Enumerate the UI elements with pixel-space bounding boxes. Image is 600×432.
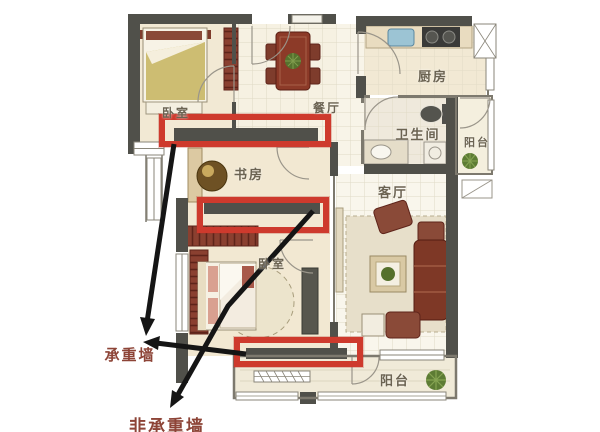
wall-bedroom-dining bbox=[232, 24, 236, 64]
label-living: 客厅 bbox=[378, 182, 408, 201]
stove-burner bbox=[443, 31, 455, 43]
window bbox=[292, 15, 322, 23]
bed-bottom-pillow bbox=[208, 298, 218, 324]
label-balcony-bottom: 阳台 bbox=[380, 370, 410, 389]
sofa bbox=[414, 240, 448, 320]
floor-plan: 卧室 餐厅 厨房 卫生间 阳台 客厅 书房 卧室 阳台 承重墙 非承重墙 bbox=[0, 0, 600, 432]
bed-top-pillows bbox=[146, 31, 202, 40]
plant-leaves bbox=[426, 370, 446, 390]
wall-left bbox=[128, 14, 140, 154]
dresser bbox=[302, 268, 318, 334]
bed-bottom-pillow bbox=[208, 266, 218, 292]
wall-kitchen-top bbox=[358, 16, 472, 26]
study-chair-highlight bbox=[202, 165, 214, 177]
wall-study-living-upper bbox=[330, 142, 338, 176]
label-non-load-bearing-wall: 非承重墙 bbox=[129, 412, 205, 432]
wall-living-right bbox=[446, 164, 458, 356]
dining-chair bbox=[309, 44, 320, 60]
kitchen-sink bbox=[388, 29, 414, 46]
label-bedroom-bottom: 卧室 bbox=[258, 255, 286, 272]
bath-sink bbox=[371, 145, 391, 159]
ottoman bbox=[362, 314, 384, 336]
wall-top-left bbox=[128, 14, 252, 24]
tv-cabinet bbox=[336, 208, 343, 292]
shower bbox=[424, 142, 446, 164]
toilet bbox=[420, 106, 442, 123]
coffee-table-plant-icon bbox=[381, 267, 395, 281]
label-study: 书房 bbox=[234, 164, 264, 183]
stove-burner bbox=[426, 31, 438, 43]
wall-bathroom-bottom bbox=[364, 164, 458, 174]
bed-bottom-headboard bbox=[198, 262, 206, 330]
wall-kitchen-left-stub2 bbox=[356, 76, 366, 98]
dining-chair bbox=[266, 44, 277, 60]
label-load-bearing-wall: 承重墙 bbox=[104, 344, 155, 365]
dining-chair bbox=[309, 68, 320, 84]
dining-chair bbox=[266, 68, 277, 84]
bed-bottom-throw bbox=[242, 266, 254, 288]
label-bathroom: 卫生间 bbox=[395, 124, 440, 143]
sofa-corner bbox=[418, 222, 444, 242]
wall-kitchen-left-stub bbox=[356, 16, 366, 34]
chaise bbox=[386, 312, 420, 338]
study-chair bbox=[197, 161, 227, 191]
label-dining: 餐厅 bbox=[313, 99, 341, 116]
label-kitchen: 厨房 bbox=[418, 66, 448, 85]
highlight-box-middle-wall bbox=[197, 197, 329, 233]
wall-bedroom-left-lower bbox=[176, 333, 188, 383]
highlight-box-bottom-wall bbox=[234, 337, 363, 367]
wall-bedroom-left-upper bbox=[176, 198, 188, 252]
label-balcony-right: 阳台 bbox=[464, 134, 490, 150]
label-bedroom-top: 卧室 bbox=[162, 104, 190, 121]
